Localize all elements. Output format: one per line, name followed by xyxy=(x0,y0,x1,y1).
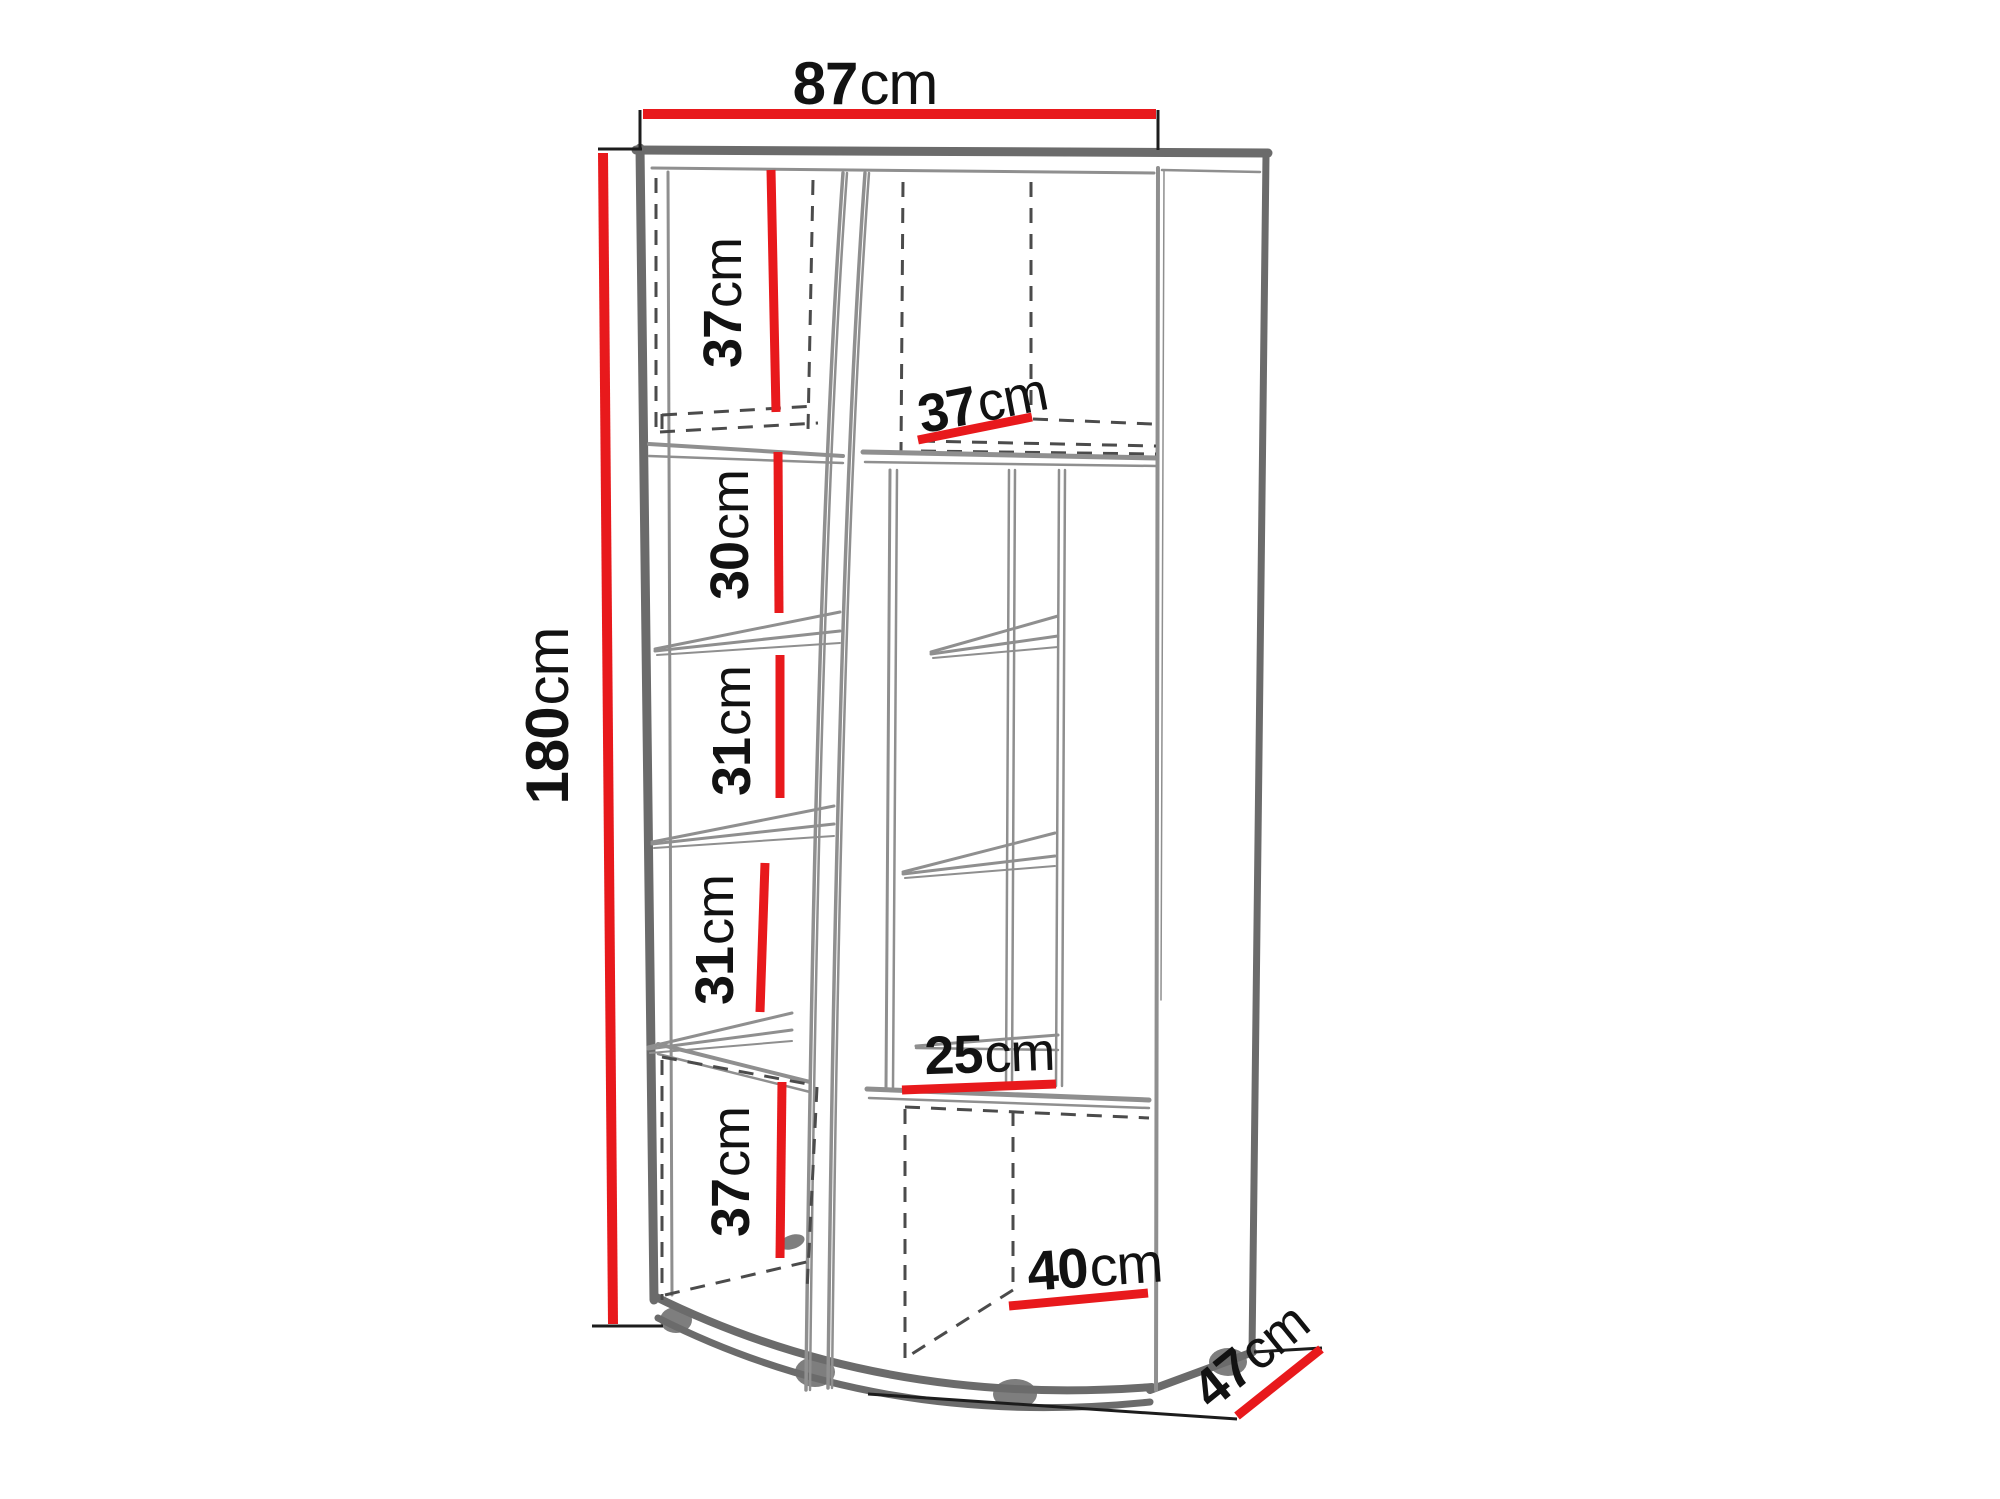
left-bottom-cell-top-edge-echo xyxy=(658,1054,810,1092)
height-dimension-line xyxy=(603,153,613,1324)
left-section-4-label: 31cm xyxy=(685,875,745,1005)
left-section-4-line xyxy=(760,863,765,1012)
left-shelf-1-front-edge-echo xyxy=(649,456,843,463)
right-column-divider-line xyxy=(1062,470,1065,1086)
depth-floor-projection-line xyxy=(868,1394,1237,1419)
left-top-cell-hidden-edge-right xyxy=(808,180,813,430)
left-shelf-2-top-edge xyxy=(655,612,840,649)
side-panel-inner-top-line xyxy=(1162,170,1260,172)
right-top-cell-shelf-hidden-line xyxy=(920,441,1156,446)
left-top-cell-shelf-hidden-line xyxy=(660,423,818,432)
height-label: 180cm xyxy=(514,627,581,804)
left-top-cell-shelf-hidden-line xyxy=(662,406,816,415)
dimension-left-sections: 37cm 30cm 31cm 31cm 37cm xyxy=(685,170,782,1258)
left-bottom-cell-hidden-floor xyxy=(665,1260,815,1295)
left-section-5-line xyxy=(780,1082,782,1258)
width-label: 87cm xyxy=(793,50,938,117)
left-shelf-3-top-edge xyxy=(652,806,834,842)
left-section-3-label: 31cm xyxy=(702,666,762,796)
plinth-upper-curve xyxy=(654,1296,1152,1390)
left-section-2-label: 30cm xyxy=(700,470,760,600)
center-partition xyxy=(777,173,869,1390)
cabinet-front-right-corner-echo xyxy=(1161,170,1164,1000)
left-section-1-label: 37cm xyxy=(693,238,753,368)
plinth-and-feet xyxy=(654,1296,1253,1409)
right-column-divider-line xyxy=(1056,470,1059,1086)
left-shelf-2-front-edge xyxy=(655,631,840,651)
cabinet-left-edge xyxy=(640,148,654,1300)
right-bottom-cell-hidden-floor xyxy=(907,1290,1013,1357)
dimension-width: 87cm xyxy=(640,50,1158,150)
cabinet-front-right-corner-edge xyxy=(1156,168,1158,1390)
left-inner-wall-line xyxy=(668,172,672,1295)
left-section-2-line xyxy=(778,452,779,613)
right-top-cell-bottom-edge-echo xyxy=(865,462,1157,466)
left-shelf-1-front-edge xyxy=(649,444,843,456)
cabinet-top-edge xyxy=(636,150,1268,153)
cabinet-inner-top-line xyxy=(652,168,1154,173)
left-shelf-3-front-edge xyxy=(652,824,834,844)
right-column-left-wall xyxy=(886,470,890,1088)
right-bottom-width-label: 40cm xyxy=(1025,1230,1164,1302)
right-middle-shelf-depth-label: 25cm xyxy=(923,1022,1055,1087)
corner-cabinet-drawing: 87cm 180cm 37cm 30cm 31cm 31cm 37cm 37cm… xyxy=(0,0,2000,1499)
right-column-left-wall-echo xyxy=(893,470,897,1088)
left-section-5-label: 37cm xyxy=(701,1107,761,1237)
right-top-cell-hidden-edge-left xyxy=(901,182,903,452)
right-top-shelf-depth-label: 37cm xyxy=(913,361,1052,445)
corner-shelf-1-top-edge xyxy=(931,616,1058,652)
right-column-divider-line xyxy=(1006,470,1009,1087)
left-section-1-line xyxy=(771,170,776,412)
right-bottom-cell-hidden-top xyxy=(905,1107,1149,1118)
left-bottom-cell-top-edge xyxy=(658,1044,810,1082)
dimension-right-shelves: 37cm 25cm 40cm xyxy=(902,361,1164,1306)
corner-shelf-1-front-edge xyxy=(931,636,1058,654)
dimension-diagram: 87cm 180cm 37cm 30cm 31cm 31cm 37cm 37cm… xyxy=(0,0,2000,1499)
right-column-divider-line xyxy=(1012,470,1015,1087)
cabinet-back-right-edge xyxy=(1252,155,1266,1353)
right-shelf-column xyxy=(863,182,1157,1360)
